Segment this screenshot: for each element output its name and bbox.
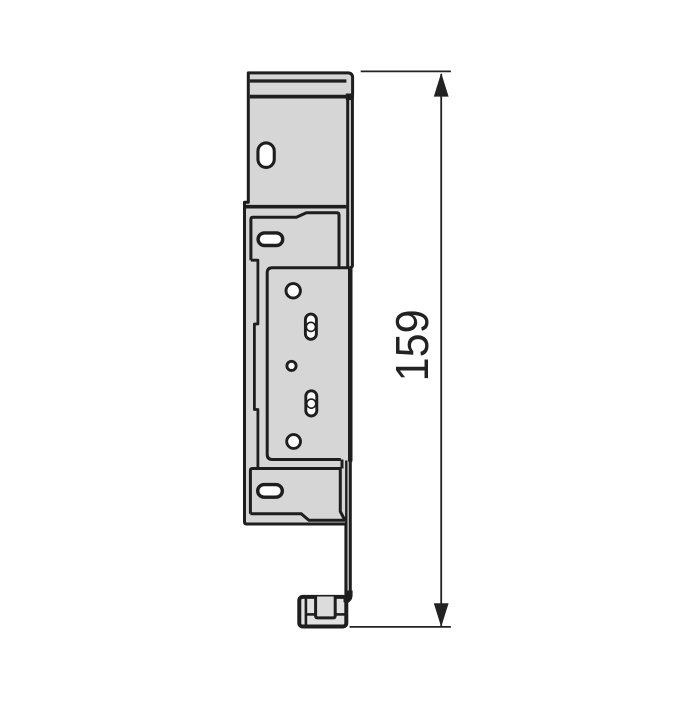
svg-text:159: 159 xyxy=(386,309,438,381)
